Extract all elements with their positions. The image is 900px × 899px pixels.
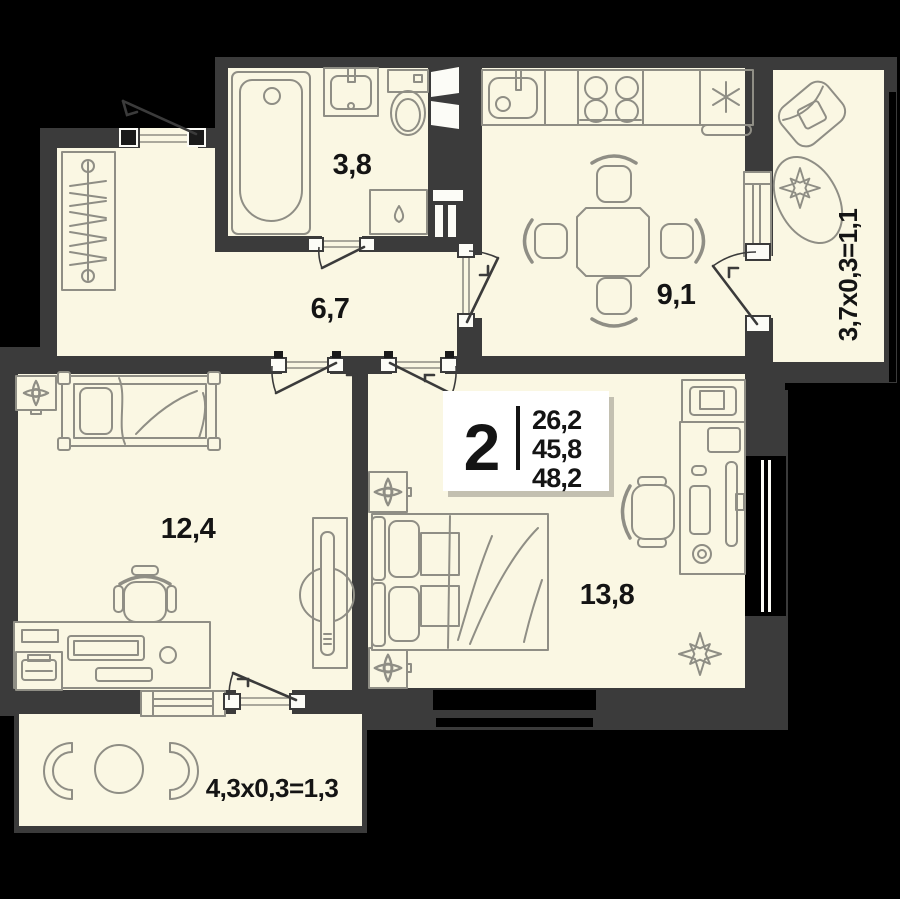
nightstand-left-icon (16, 376, 56, 414)
double-bed-icon (372, 514, 548, 650)
window-bedroom-right-side (745, 456, 786, 616)
room-area-label-bedroom-left: 12,4 (161, 513, 216, 545)
area-apartment-label: 45,8 (532, 434, 582, 464)
desk-right-icon (680, 380, 745, 574)
room-bathroom (228, 68, 428, 236)
room-area-label-hallway: 6,7 (311, 293, 350, 325)
window-bedroom-left-bottom (141, 691, 225, 716)
balcony-right (773, 70, 884, 362)
nightstand-top-icon (369, 472, 411, 512)
room-count-label: 2 (464, 410, 499, 484)
area-badge-divider (516, 406, 520, 470)
window-bedroom-right-bottom (433, 690, 596, 727)
floor-plan-canvas: 3,8 6,7 9,1 12,4 13,8 4,3x0,3=1,3 3,7x0,… (0, 0, 900, 899)
balcony-right-dimension-label: 3,7x0,3=1,1 (833, 209, 863, 342)
nightstand-bottom-icon (369, 648, 411, 688)
area-total-label: 48,2 (532, 463, 581, 493)
balcony-bottom-dimension-label: 4,3x0,3=1,3 (206, 773, 339, 803)
room-kitchen (482, 68, 745, 356)
area-living-label: 26,2 (532, 405, 581, 435)
printer-stand-left-icon (16, 652, 62, 690)
room-area-label-bedroom-right: 13,8 (580, 579, 635, 611)
room-area-label-bathroom: 3,8 (333, 149, 372, 181)
floor-plan: 3,8 6,7 9,1 12,4 13,8 4,3x0,3=1,3 3,7x0,… (0, 0, 900, 899)
area-badge: 2 26,2 45,8 48,2 (443, 391, 614, 497)
room-area-label-kitchen: 9,1 (657, 279, 696, 311)
single-bed-icon (58, 372, 220, 450)
balcony-bottom (19, 714, 362, 826)
